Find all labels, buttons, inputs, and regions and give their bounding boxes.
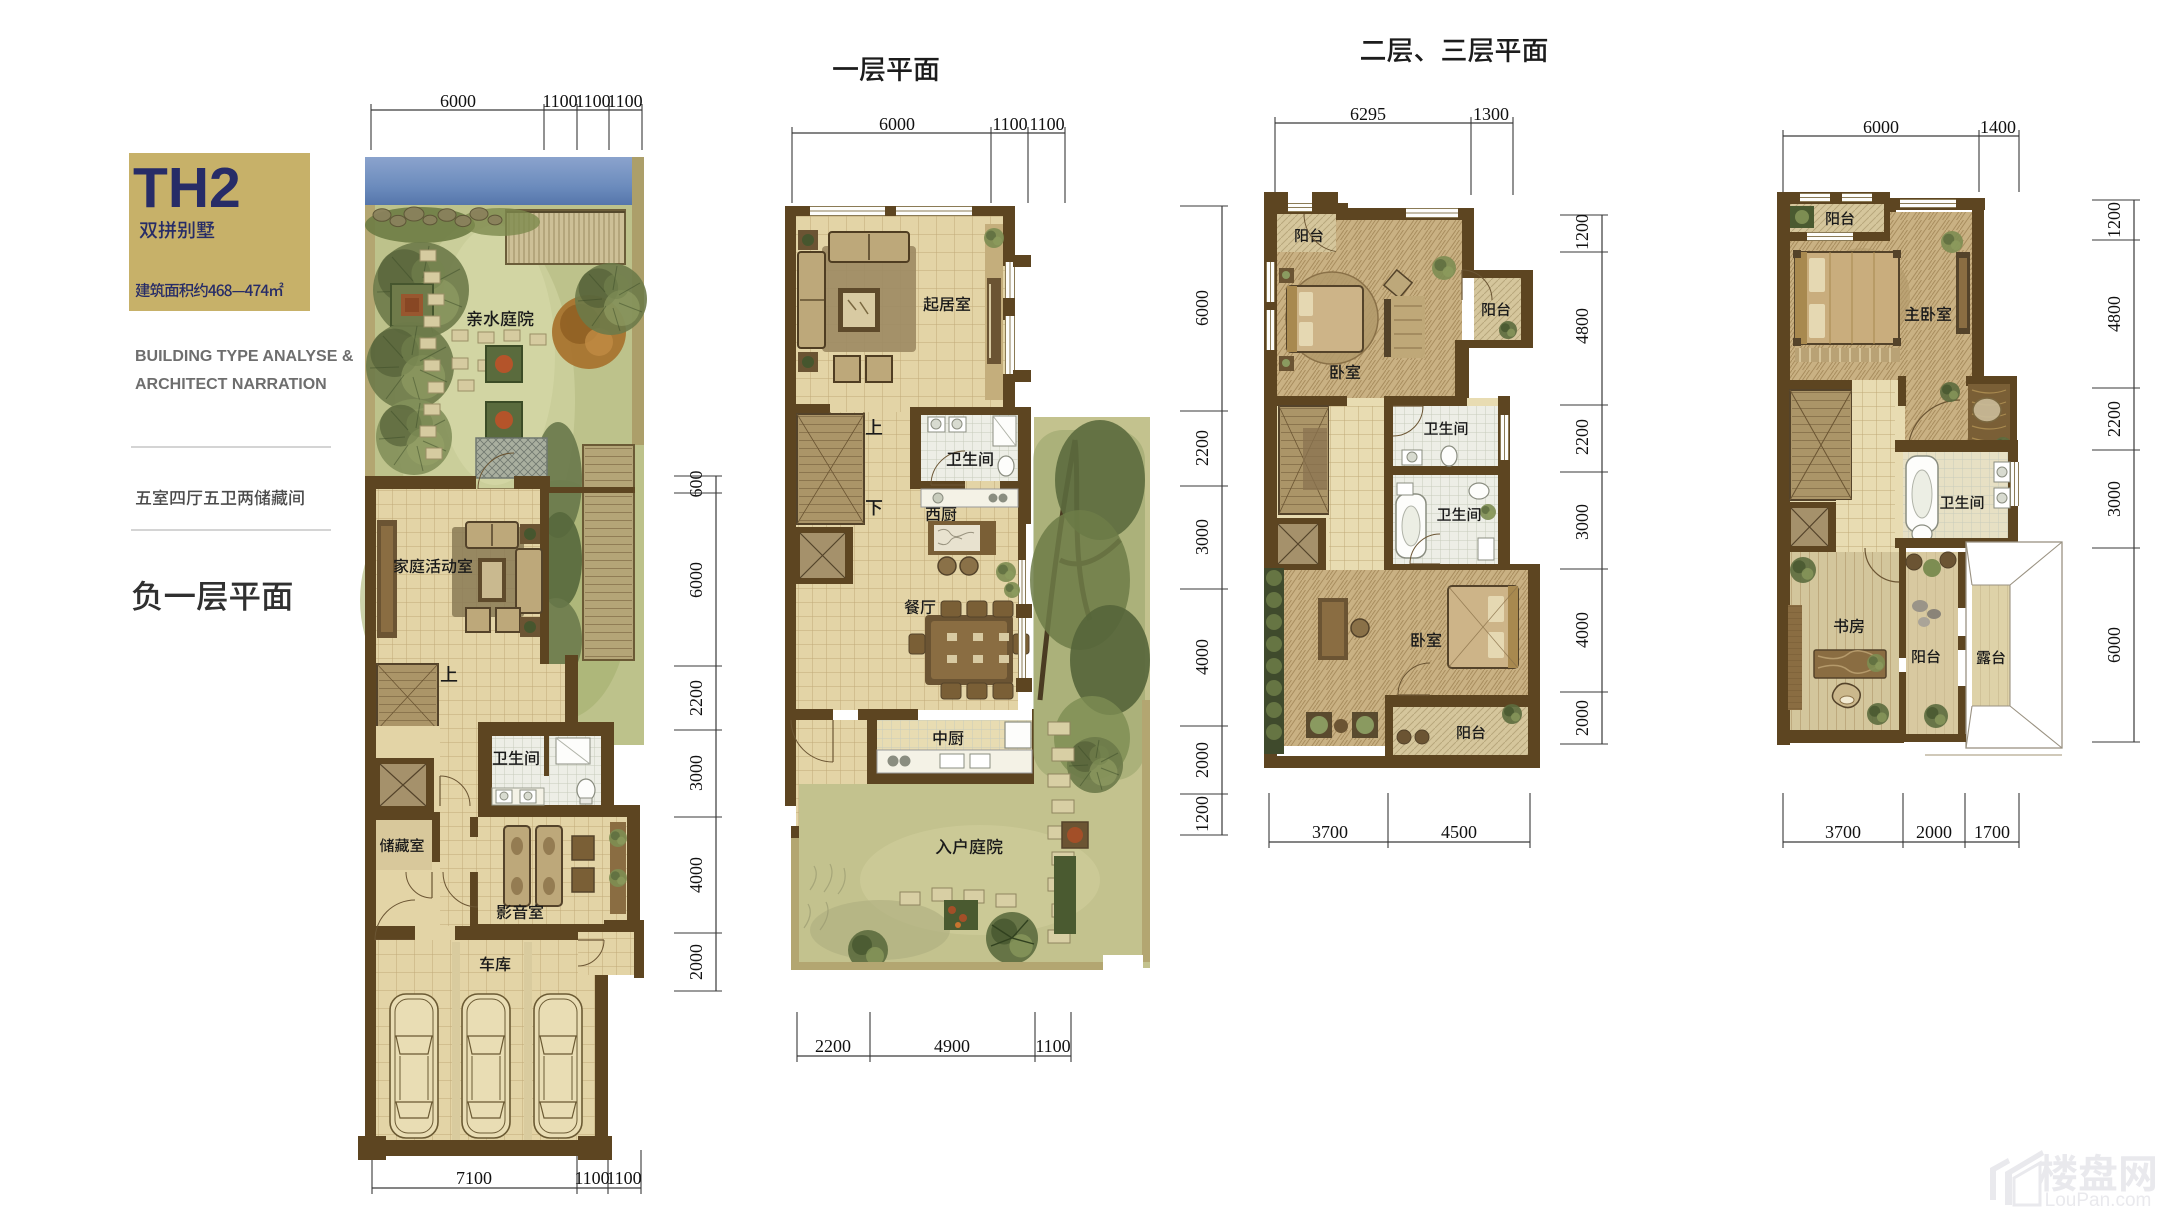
svg-text:1200: 1200 bbox=[1572, 214, 1592, 250]
svg-text:2200: 2200 bbox=[2104, 401, 2124, 437]
svg-text:1100: 1100 bbox=[574, 1168, 609, 1188]
svg-text:2200: 2200 bbox=[815, 1036, 851, 1056]
svg-text:2000: 2000 bbox=[1916, 822, 1952, 842]
svg-text:3000: 3000 bbox=[686, 755, 706, 791]
svg-text:2200: 2200 bbox=[1572, 419, 1592, 455]
svg-text:1200: 1200 bbox=[1192, 796, 1212, 832]
svg-text:600: 600 bbox=[686, 471, 706, 498]
svg-text:1100: 1100 bbox=[607, 91, 642, 111]
svg-text:1400: 1400 bbox=[1980, 117, 2016, 137]
svg-text:4500: 4500 bbox=[1441, 822, 1477, 842]
svg-text:2200: 2200 bbox=[686, 680, 706, 716]
svg-text:6000: 6000 bbox=[1192, 290, 1212, 326]
svg-text:1100: 1100 bbox=[542, 91, 577, 111]
svg-text:2000: 2000 bbox=[686, 944, 706, 980]
svg-text:3000: 3000 bbox=[2104, 481, 2124, 517]
svg-text:4800: 4800 bbox=[1572, 308, 1592, 344]
svg-text:2000: 2000 bbox=[1572, 700, 1592, 736]
svg-text:1100: 1100 bbox=[992, 114, 1027, 134]
svg-text:BUILDING TYPE ANALYSE &: BUILDING TYPE ANALYSE & bbox=[135, 348, 354, 365]
svg-text:6000: 6000 bbox=[2104, 627, 2124, 663]
svg-text:ARCHITECT NARRATION: ARCHITECT NARRATION bbox=[135, 376, 327, 393]
svg-text:1100: 1100 bbox=[1029, 114, 1064, 134]
svg-text:3700: 3700 bbox=[1825, 822, 1861, 842]
svg-text:6000: 6000 bbox=[686, 562, 706, 598]
svg-text:1100: 1100 bbox=[1035, 1036, 1070, 1056]
svg-text:3700: 3700 bbox=[1312, 822, 1348, 842]
svg-text:1100: 1100 bbox=[606, 1168, 641, 1188]
svg-text:3000: 3000 bbox=[1192, 519, 1212, 555]
svg-text:1700: 1700 bbox=[1974, 822, 2010, 842]
svg-text:4000: 4000 bbox=[1192, 639, 1212, 675]
svg-text:2000: 2000 bbox=[1192, 742, 1212, 778]
svg-text:3000: 3000 bbox=[1572, 504, 1592, 540]
svg-text:1300: 1300 bbox=[1473, 104, 1509, 124]
svg-text:4800: 4800 bbox=[2104, 296, 2124, 332]
svg-text:4000: 4000 bbox=[686, 857, 706, 893]
svg-text:4000: 4000 bbox=[1572, 612, 1592, 648]
svg-text:7100: 7100 bbox=[456, 1168, 492, 1188]
svg-text:6000: 6000 bbox=[879, 114, 915, 134]
svg-text:2200: 2200 bbox=[1192, 430, 1212, 466]
svg-text:1200: 1200 bbox=[2104, 202, 2124, 238]
svg-text:6295: 6295 bbox=[1350, 104, 1386, 124]
svg-text:6000: 6000 bbox=[1863, 117, 1899, 137]
svg-text:1100: 1100 bbox=[575, 91, 610, 111]
svg-text:6000: 6000 bbox=[440, 91, 476, 111]
svg-text:LouPan.com: LouPan.com bbox=[2045, 1190, 2152, 1211]
svg-text:4900: 4900 bbox=[934, 1036, 970, 1056]
svg-text:TH2: TH2 bbox=[133, 156, 241, 220]
